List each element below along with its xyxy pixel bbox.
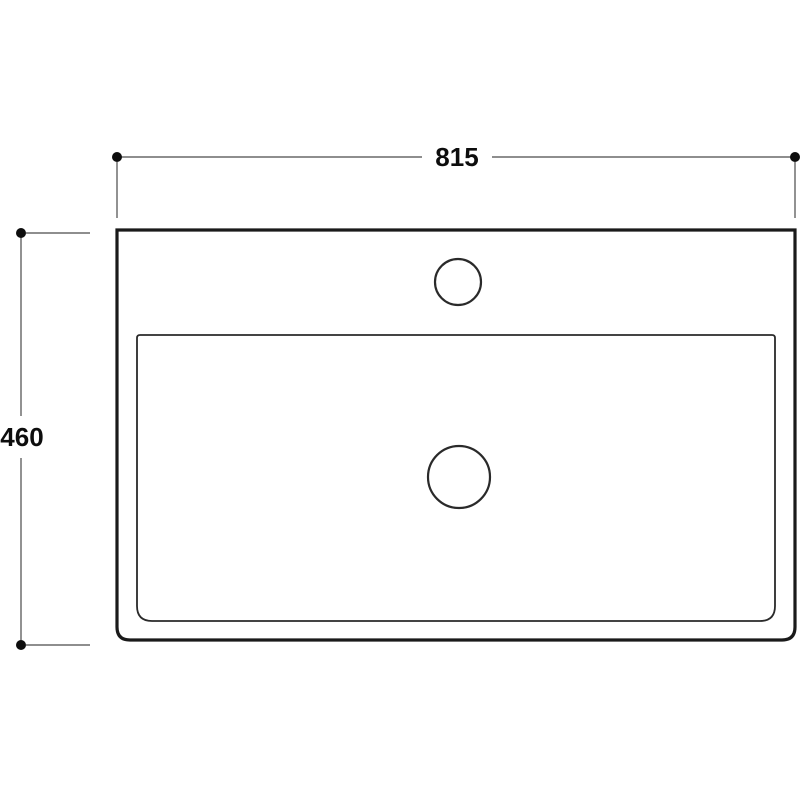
faucet-hole-circle	[435, 259, 481, 305]
width-dimension-label: 815	[435, 142, 478, 172]
depth-endpoint-dot-top	[16, 228, 26, 238]
width-dimension: 815	[112, 142, 800, 218]
depth-dimension-label: 460	[0, 422, 43, 452]
basin-inner-bowl	[137, 335, 775, 621]
depth-endpoint-dot-bottom	[16, 640, 26, 650]
drain-hole-circle	[428, 446, 490, 508]
width-endpoint-dot-right	[790, 152, 800, 162]
basin-outer-edge	[117, 230, 795, 640]
basin-technical-drawing: 815 460	[0, 0, 800, 800]
drawing-canvas: 815 460	[0, 0, 800, 800]
width-endpoint-dot-left	[112, 152, 122, 162]
depth-dimension: 460	[0, 228, 90, 650]
